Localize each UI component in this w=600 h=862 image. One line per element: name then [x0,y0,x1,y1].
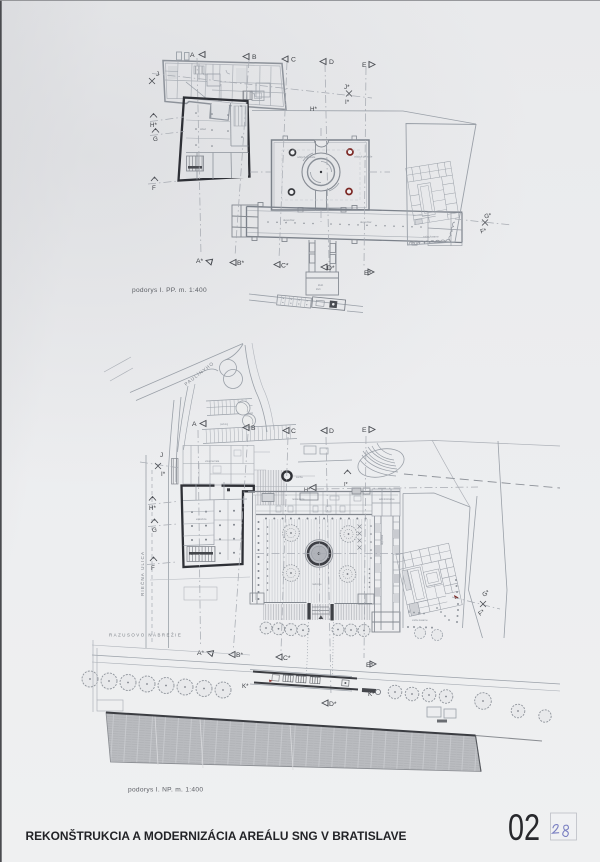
svg-text:I*: I* [161,471,166,478]
svg-text:H*: H* [149,505,156,512]
svg-text:vstupna hala: vstupna hala [205,460,220,463]
svg-text:D: D [329,59,334,66]
svg-text:klub: klub [316,288,321,291]
svg-text:depozitar: depozitar [360,220,372,224]
svg-text:C: C [291,428,296,435]
svg-text:J: J [156,71,159,78]
svg-text:C: C [291,57,296,64]
svg-text:A: A [192,421,197,428]
svg-text:B*: B* [237,260,245,267]
svg-text:J: J [160,452,163,459]
svg-text:REKONŠTRUKCIA A MODERNIZÁCIA A: REKONŠTRUKCIA A MODERNIZÁCIA AREÁLU SNG … [26,828,407,843]
svg-text:J*: J* [344,84,350,91]
svg-text:G*: G* [484,212,493,220]
svg-text:depozitar: depozitar [381,535,384,545]
svg-text:I*: I* [345,99,350,106]
svg-text:podorys I. PP. m. 1:400: podorys I. PP. m. 1:400 [132,287,207,294]
svg-text:F*: F* [477,608,487,618]
svg-text:vodne kasarne: vodne kasarne [412,619,428,622]
svg-text:oddych pri vode: oddych pri vode [354,155,373,159]
svg-text:02: 02 [508,808,540,849]
svg-text:K*: K* [242,683,249,690]
svg-text:E: E [362,62,367,69]
svg-text:I*: I* [344,482,349,488]
svg-text:parking: parking [220,423,229,426]
svg-text:H*: H* [310,106,317,113]
svg-text:depozitar: depozitar [283,218,295,222]
svg-text:F: F [151,565,155,572]
svg-text:podorys I. NP. m. 1:400: podorys I. NP. m. 1:400 [128,787,203,794]
svg-text:F: F [152,185,156,192]
svg-text:B: B [252,54,257,61]
svg-text:byty: byty [203,73,208,76]
svg-text:C*: C* [281,263,289,270]
svg-text:D*: D* [329,701,337,708]
svg-text:B*: B* [236,652,244,659]
svg-text:expozicia: expozicia [196,518,207,521]
svg-text:A*: A* [196,258,204,265]
svg-text:RAZUSOVO NÁBREŽIE: RAZUSOVO NÁBREŽIE [109,633,182,638]
svg-text:sklad: sklad [200,128,206,131]
svg-text:RIEČNA ULICA: RIEČNA ULICA [139,551,145,596]
svg-text:socha: socha [296,476,303,479]
svg-text:C*: C* [283,655,291,662]
svg-text:PAULÍNYHO: PAULÍNYHO [183,360,215,387]
svg-text:F*: F* [480,227,488,235]
svg-text:A*: A* [197,650,205,657]
svg-text:administrativa: administrativa [379,498,395,501]
svg-text:G*: G* [481,588,491,598]
svg-text:A: A [190,52,195,59]
svg-text:H*: H* [304,488,311,494]
svg-text:G: G [153,136,158,143]
svg-text:restauracia: restauracia [292,498,305,501]
svg-text:H*: H* [150,122,157,129]
svg-text:G: G [152,527,157,534]
svg-text:vodne kasarne: vodne kasarne [423,236,439,239]
svg-text:oddych pri vode: oddych pri vode [297,155,316,159]
svg-text:klub: klub [318,283,324,287]
svg-text:nadvorie: nadvorie [312,583,322,586]
svg-text:D: D [329,428,334,435]
svg-text:B: B [251,425,256,432]
svg-text:D*: D* [327,265,335,272]
svg-text:E: E [362,427,367,434]
